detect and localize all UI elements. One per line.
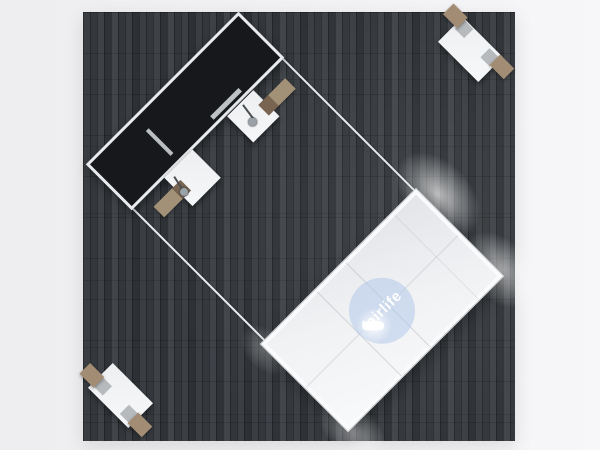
exhibit-overhead-render: fairlife bbox=[0, 0, 600, 450]
bottle-icon bbox=[362, 321, 384, 330]
